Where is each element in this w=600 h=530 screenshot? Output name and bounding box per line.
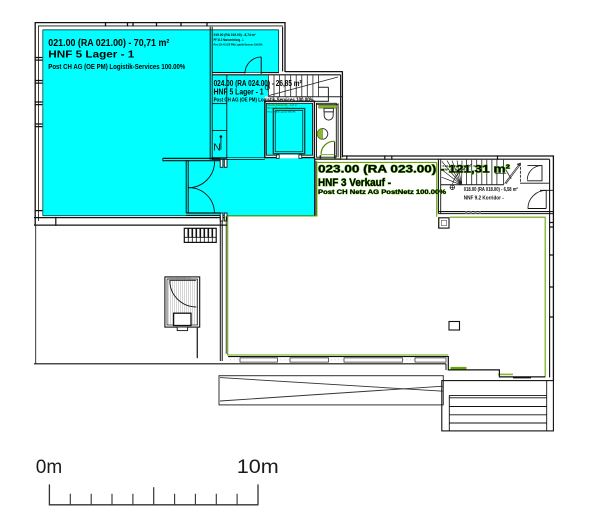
svg-text:N: N (213, 142, 221, 154)
svg-text:023.00 (RA 023.00) - 121,31 m²: 023.00 (RA 023.00) - 121,31 m² (318, 164, 510, 176)
svg-text:Post CH AG Logistik 100.00%: Post CH AG Logistik 100.00% (268, 110, 296, 113)
svg-text:PF 9.1 Personenlift: PF 9.1 Personenlift (268, 107, 289, 110)
svg-text:HNF 5 Lager - 1: HNF 5 Lager - 1 (214, 87, 264, 97)
svg-text:021.00 (RA 021.00) - 70,71 m²: 021.00 (RA 021.00) - 70,71 m² (48, 37, 169, 49)
svg-text:Post CH AG (OE PM) Logistik-Se: Post CH AG (OE PM) Logistik-Services 100… (214, 43, 264, 46)
svg-text:HNF 5 Lager - 1: HNF 5 Lager - 1 (48, 48, 134, 60)
svg-text:Post CH Netz AG PostNetz 100.0: Post CH Netz AG PostNetz 100.00% (318, 189, 446, 196)
svg-text:019.00 (RA 019.00) - 8,74 m²: 019.00 (RA 019.00) - 8,74 m² (214, 33, 257, 37)
svg-text:0m: 0m (36, 457, 62, 478)
svg-text:Post CH AG (OE PM) Logistik-Se: Post CH AG (OE PM) Logistik-Services 100… (48, 62, 185, 71)
svg-text:NNF 9.2 Korridor -: NNF 9.2 Korridor - (464, 196, 504, 202)
svg-text:HNF 3 Verkauf -: HNF 3 Verkauf - (318, 177, 391, 189)
svg-text:018.00 (RA 018.00) - 6,58 m²: 018.00 (RA 018.00) - 6,58 m² (464, 187, 518, 193)
svg-text:PF 10.2 Hausverteilung - 1: PF 10.2 Hausverteilung - 1 (214, 38, 244, 42)
svg-text:Post CH AG (OE PM) Logistik-Se: Post CH AG (OE PM) Logistik-Services 100… (214, 97, 314, 103)
svg-text:019.00 (RA 019.00) 3,27: 019.00 (RA 019.00) 3,27 (168, 276, 193, 279)
svg-text:10m: 10m (237, 457, 279, 478)
